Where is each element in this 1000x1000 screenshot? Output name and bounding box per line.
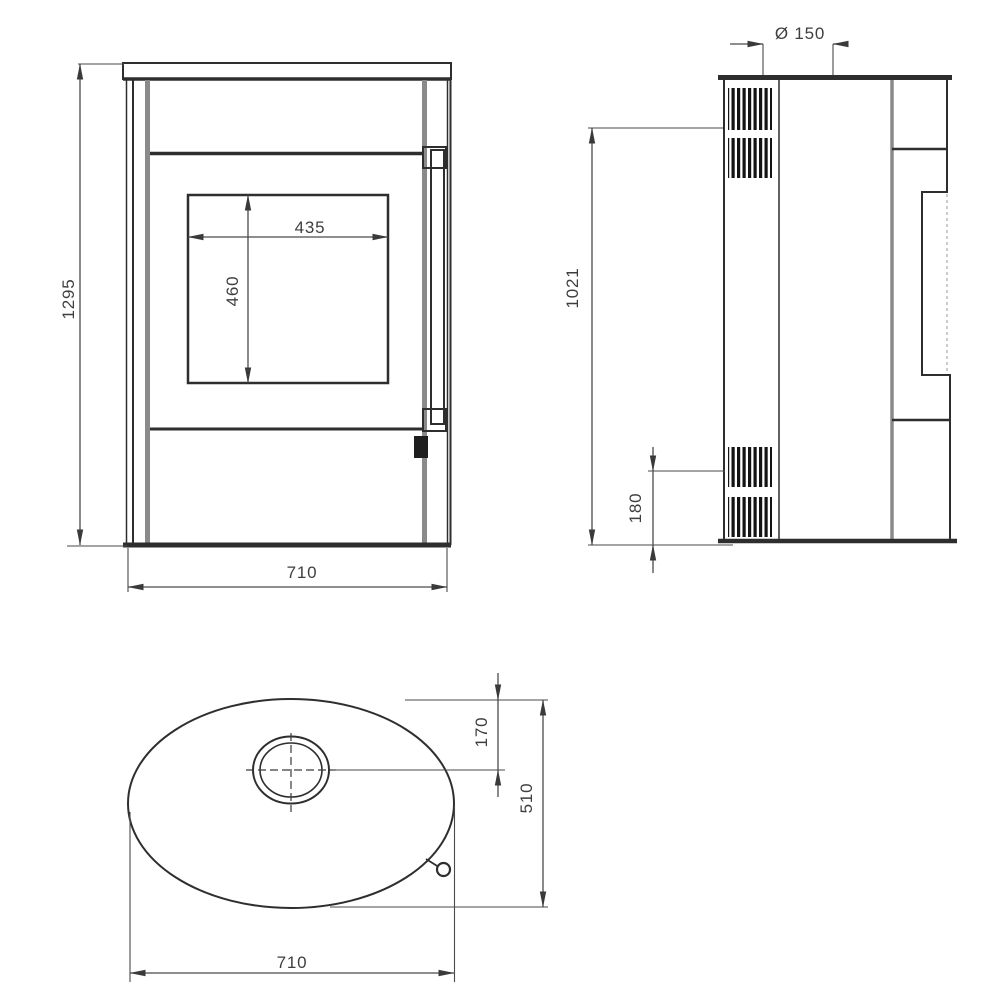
- glass-width-label: 435: [295, 218, 326, 237]
- side-view: Ø 150 1021: [563, 24, 957, 573]
- front-top-plate: [123, 63, 451, 79]
- dim-front-overall-height: 1295: [59, 64, 127, 546]
- vent-grille-lower-a: [728, 447, 772, 487]
- front-stove-outline: [123, 63, 451, 545]
- glass-window: [188, 195, 388, 383]
- dim-top-width: 710: [130, 805, 455, 982]
- flue-diameter-label: Ø 150: [775, 24, 825, 43]
- door-latch: [414, 436, 428, 458]
- front-width-label: 710: [287, 563, 318, 582]
- dim-front-overall-width: 710: [128, 548, 447, 592]
- flue-height-label: 1021: [563, 267, 582, 308]
- dim-flue-diameter: Ø 150: [730, 24, 848, 76]
- flue-offset-label: 170: [472, 717, 491, 748]
- front-height-label: 1295: [59, 278, 78, 319]
- side-front-contour: [922, 77, 950, 541]
- front-view: 1295 435 460 710: [59, 63, 451, 592]
- top-view: 170 510 710: [128, 673, 548, 982]
- depth-label: 510: [517, 783, 536, 814]
- stove-dimension-drawing: 1295 435 460 710 Ø 150: [0, 0, 1000, 1000]
- dim-flue-offset: 170: [405, 673, 548, 797]
- side-stove-outline: [718, 77, 957, 541]
- dim-depth: 510: [330, 700, 548, 907]
- vent-grille-upper-b: [728, 138, 772, 178]
- dim-glass-height: 460: [223, 195, 248, 383]
- dim-flue-height: 1021: [563, 128, 733, 545]
- dim-glass-width: 435: [188, 218, 388, 237]
- dim-vent-height: 180: [626, 447, 725, 573]
- vent-grille-upper-a: [728, 88, 772, 130]
- glass-height-label: 460: [223, 276, 242, 307]
- top-width-label: 710: [277, 953, 308, 972]
- vent-height-label: 180: [626, 493, 645, 524]
- knob-stem: [426, 859, 438, 867]
- door-knob: [437, 863, 450, 876]
- vent-grille-lower-b: [728, 497, 772, 537]
- technical-drawing-sheet: 1295 435 460 710 Ø 150: [0, 0, 1000, 1000]
- door-handle-bar: [431, 150, 444, 424]
